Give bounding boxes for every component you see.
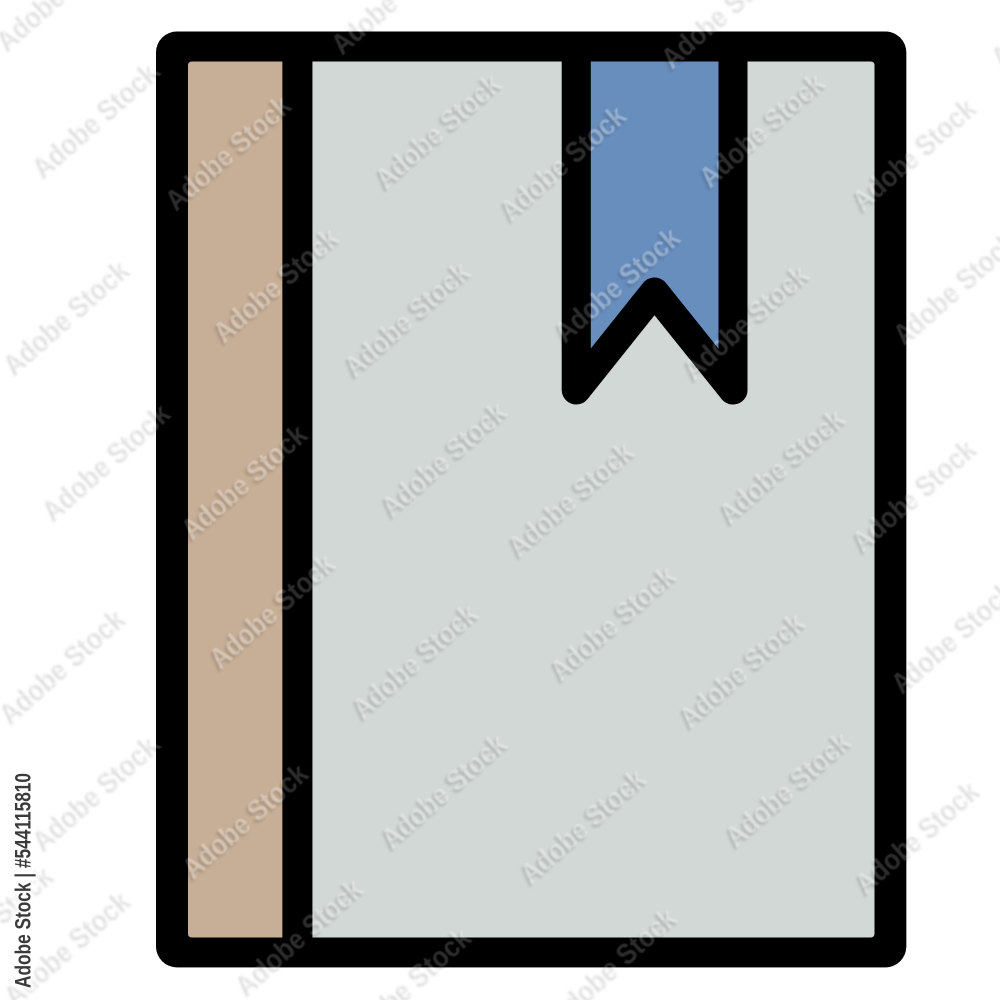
svg-text:Adobe Stock | #544115810: Adobe Stock | #544115810 (11, 773, 36, 988)
